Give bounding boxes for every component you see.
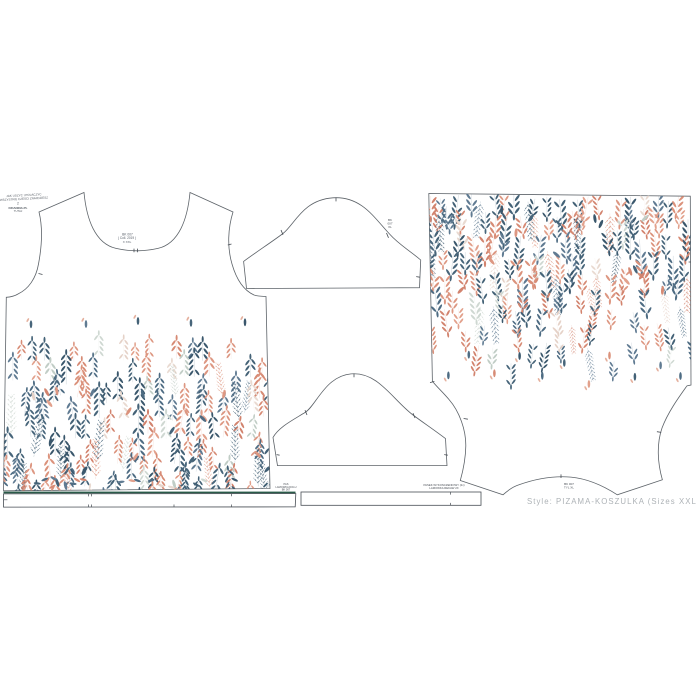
- svg-text:TYL XL: TYL XL: [564, 486, 574, 490]
- svg-text:LAMOWKA REKAW 2X: LAMOWKA REKAW 2X: [429, 486, 458, 490]
- svg-text:Style: PIZAMA-KOSZULKA (Sizes: Style: PIZAMA-KOSZULKA (Sizes XXL: [527, 497, 697, 506]
- svg-text:2: 2: [17, 202, 19, 206]
- svg-text:TUTAJ: TUTAJ: [14, 209, 23, 213]
- svg-text:X XXL: X XXL: [123, 240, 132, 244]
- svg-text:BK 007: BK 007: [282, 487, 291, 491]
- svg-text:XL: XL: [388, 225, 392, 229]
